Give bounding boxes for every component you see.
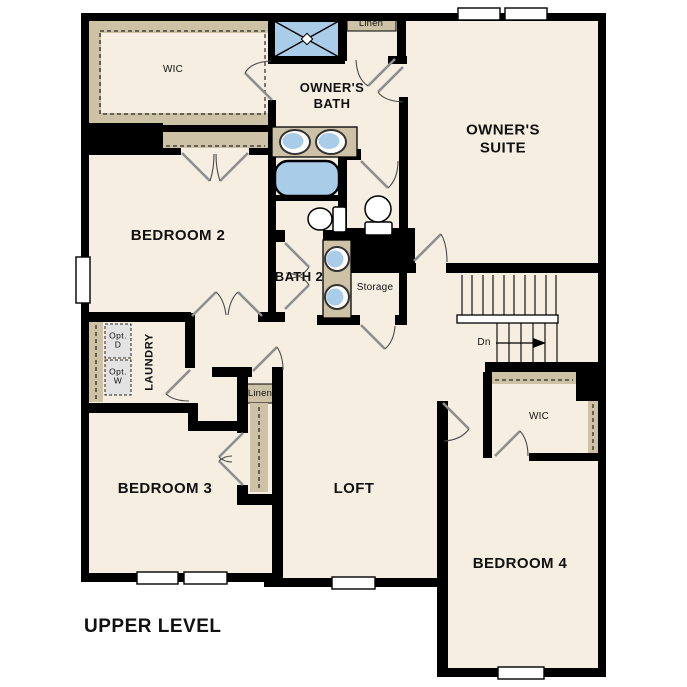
floor-plan: WIC Linen OWNER'S BATH OWNER'S SUITE BED…	[0, 0, 687, 687]
bathtub-icon	[275, 161, 339, 196]
bath2-vanity-icon	[323, 240, 351, 318]
toilet-icon-bath2	[308, 207, 346, 232]
toilet-icon-owners	[365, 196, 392, 235]
shower-icon	[274, 21, 339, 57]
plan-title: UPPER LEVEL	[84, 616, 221, 638]
floorplan-drawing	[0, 0, 687, 687]
double-vanity-icon	[272, 127, 357, 157]
